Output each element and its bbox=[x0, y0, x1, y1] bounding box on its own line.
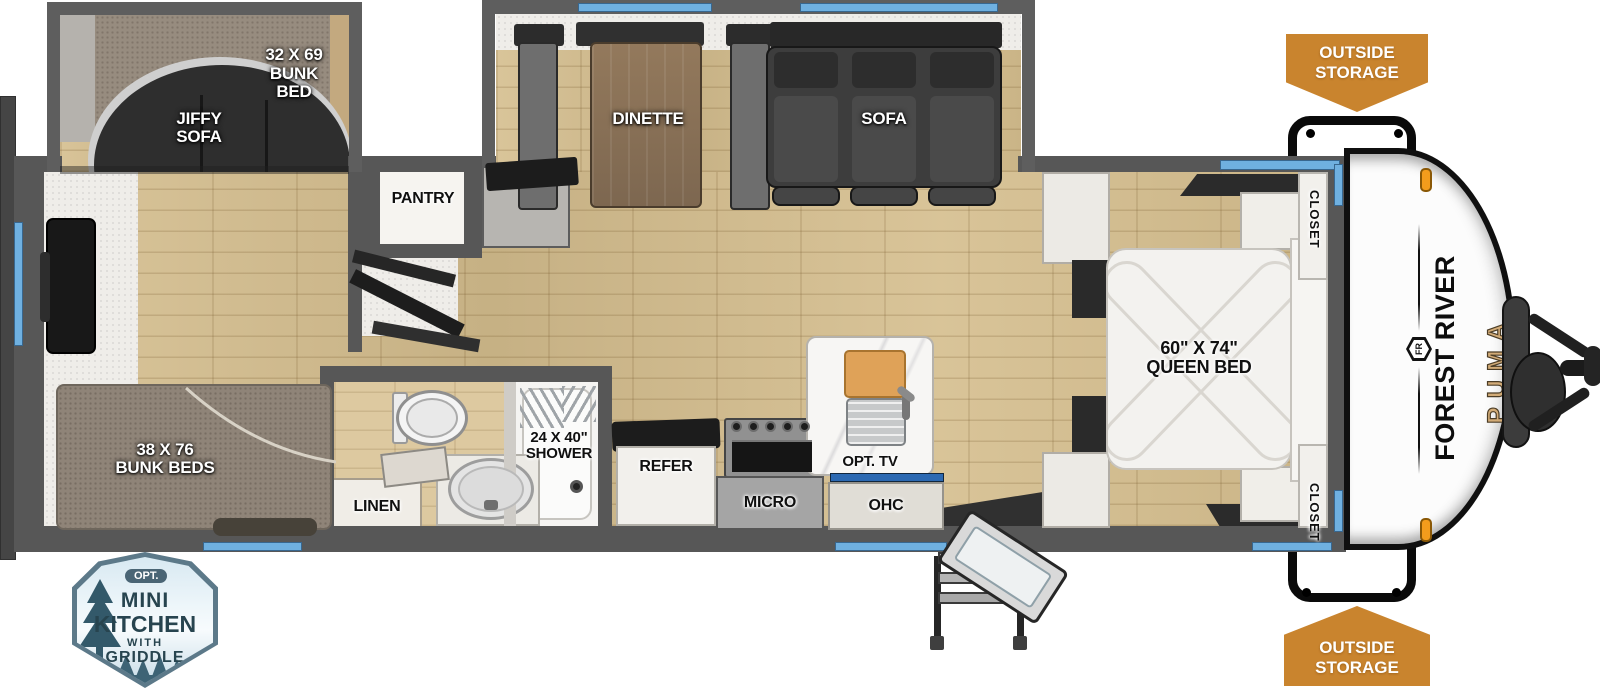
stove-oven-front bbox=[732, 440, 812, 472]
stove-burner bbox=[731, 421, 742, 432]
outside-storage-bottom-label: OUTSIDE STORAGE bbox=[1315, 638, 1399, 686]
shower-head-spray bbox=[562, 386, 596, 422]
living-slideout-window-right bbox=[800, 3, 998, 12]
badge-griddle-text: GRIDDLE bbox=[77, 649, 213, 667]
shower-label: 24 X 40" SHOWER bbox=[516, 424, 602, 468]
entry-step-foot bbox=[1013, 636, 1027, 650]
treeline-icon bbox=[185, 655, 203, 679]
sofa-headrest bbox=[930, 52, 994, 88]
front-corner-window-top bbox=[1334, 164, 1343, 206]
rear-tv bbox=[46, 218, 96, 354]
rear-tv-mount bbox=[40, 252, 50, 322]
micro-label: MICRO bbox=[722, 491, 818, 515]
mini-kitchen-badge: OPT. MINI KITCHEN WITH GRIDDLE bbox=[72, 552, 218, 688]
jiffy-sofa-label: JIFFY SOFA bbox=[156, 106, 242, 150]
vanity-faucet bbox=[484, 500, 498, 510]
treeline-icon bbox=[201, 659, 213, 679]
front-corner-window-bottom bbox=[1334, 490, 1343, 532]
sofa-footrest bbox=[772, 186, 840, 206]
storage-screw-dot bbox=[1302, 588, 1311, 597]
ohc-label: OHC bbox=[838, 494, 934, 518]
bedroom-cabinet-bottom bbox=[1042, 452, 1110, 528]
closet-top-label: CLOSET bbox=[1300, 178, 1328, 260]
hitch-coupler-knob bbox=[1584, 346, 1600, 386]
badge-mini-text: MINI bbox=[77, 589, 213, 613]
sofa-headrest bbox=[774, 52, 838, 88]
bunk-bed-32x69-label: 32 X 69 BUNK BED bbox=[246, 38, 342, 110]
brand-swoosh-line bbox=[1418, 367, 1420, 474]
rear-wall bbox=[14, 156, 44, 552]
stove-burner bbox=[799, 421, 810, 432]
bedroom-cabinet-top bbox=[1042, 172, 1110, 264]
shower-drain bbox=[570, 480, 583, 493]
bedroom-window-top bbox=[1220, 160, 1340, 170]
toilet-seat bbox=[406, 398, 458, 438]
optional-tv-label: OPT. TV bbox=[818, 451, 922, 473]
queen-bed-label: 60" X 74" QUEEN BED bbox=[1132, 334, 1266, 382]
brand-swoosh-line bbox=[1418, 224, 1420, 331]
living-slideout-window-left bbox=[578, 3, 712, 12]
closet-bottom-label: CLOSET bbox=[1300, 468, 1328, 556]
storage-screw-dot bbox=[1392, 588, 1401, 597]
fr-monogram: FR bbox=[1414, 343, 1424, 355]
sofa-footrest bbox=[850, 186, 918, 206]
rear-window bbox=[14, 222, 23, 346]
bath-wall-top bbox=[320, 366, 612, 382]
bottom-window-kitchen bbox=[835, 542, 947, 551]
refer-label: REFER bbox=[622, 455, 710, 479]
sofa-label: SOFA bbox=[844, 108, 924, 130]
island-sink bbox=[846, 398, 906, 446]
outside-storage-banner-top: OUTSIDE STORAGE bbox=[1286, 34, 1428, 112]
bunk-beds-pillow bbox=[213, 518, 317, 536]
sofa-console bbox=[770, 22, 1002, 48]
badge-ground bbox=[77, 675, 213, 683]
bottom-window-rear bbox=[203, 542, 302, 551]
forest-river-wordmark: FOREST RIVER bbox=[1427, 228, 1463, 488]
linen-label: LINEN bbox=[334, 495, 420, 519]
stove-burner bbox=[782, 421, 793, 432]
storage-screw-dot bbox=[1306, 129, 1315, 138]
bunk-beds-38x76-label: 38 X 76 BUNK BEDS bbox=[100, 436, 230, 482]
pantry-label: PANTRY bbox=[382, 188, 464, 210]
sofa-seat bbox=[930, 96, 994, 182]
stove-burner bbox=[765, 421, 776, 432]
badge-opt-pill: OPT. bbox=[125, 569, 167, 583]
badge-with-text: WITH bbox=[77, 637, 213, 649]
sofa-seat bbox=[774, 96, 838, 182]
sofa-footrest bbox=[928, 186, 996, 206]
badge-inner: OPT. MINI KITCHEN WITH GRIDDLE bbox=[77, 557, 213, 683]
marker-light-top bbox=[1420, 168, 1432, 192]
badge-kitchen-text: KITCHEN bbox=[77, 611, 213, 638]
optional-tv-strip bbox=[830, 473, 944, 482]
dinette-label: DINETTE bbox=[600, 108, 696, 130]
outside-storage-banner-bottom: OUTSIDE STORAGE bbox=[1284, 606, 1430, 686]
entry-step-foot bbox=[930, 636, 944, 650]
stove-burner bbox=[748, 421, 759, 432]
bunk-slideout-shadow bbox=[60, 166, 349, 174]
shower-head-spray bbox=[520, 388, 564, 428]
floorplan-canvas: 32 X 69 BUNK BED JIFFY SOFA DINETTE SOFA… bbox=[0, 0, 1600, 691]
storage-screw-dot bbox=[1394, 129, 1403, 138]
outside-storage-top-label: OUTSIDE STORAGE bbox=[1315, 43, 1399, 112]
marker-light-bottom bbox=[1420, 518, 1432, 542]
sofa-headrest bbox=[852, 52, 916, 88]
dinette-bench-right bbox=[730, 42, 770, 210]
